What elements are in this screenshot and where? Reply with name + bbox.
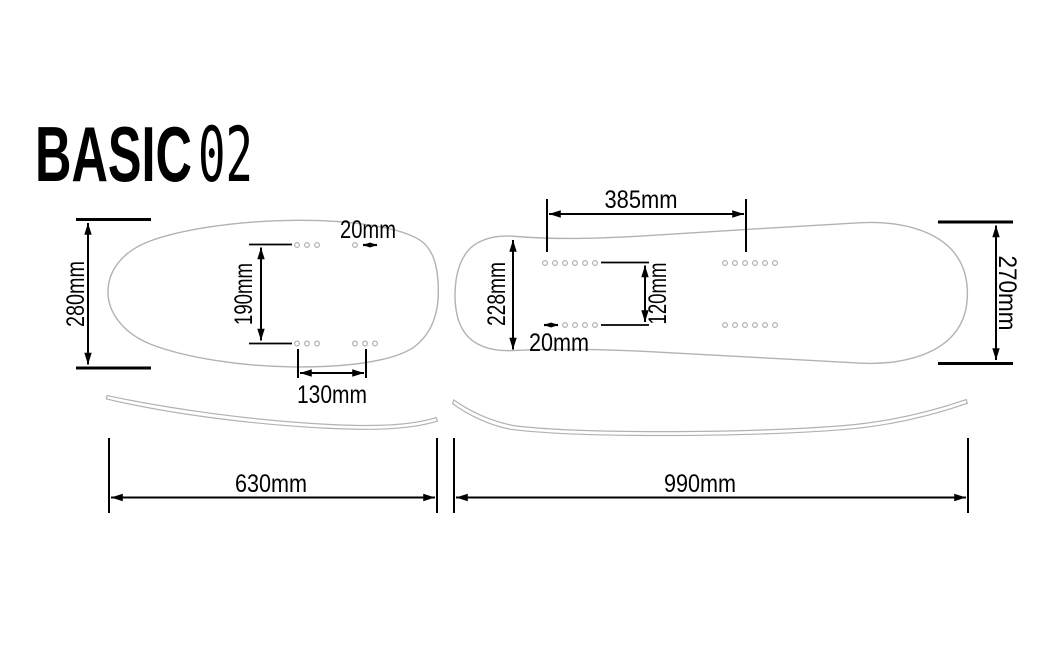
- dim-label-385mm: 385mm: [605, 186, 678, 214]
- dim-label-270mm: 270mm: [993, 256, 1021, 331]
- dim-long-deck-hole-pitch: 20mm: [529, 325, 589, 357]
- dim-short-deck-hole-pitch: 20mm: [340, 216, 396, 245]
- title-brand: BASIC: [35, 110, 192, 198]
- dim-label-990mm: 990mm: [664, 470, 736, 498]
- dim-label-228mm: 228mm: [483, 262, 511, 326]
- long-deck-side-profile: [453, 400, 968, 436]
- dim-long-deck-length: 990mm: [454, 438, 968, 513]
- dim-short-deck-length: 630mm: [109, 438, 437, 513]
- spec-sheet: BASIC 02 280mm 190mm 20mm 130mm: [0, 0, 1062, 647]
- dim-label-20mm-short: 20mm: [340, 216, 396, 244]
- dim-label-190mm: 190mm: [230, 263, 258, 325]
- title-model: 02: [198, 110, 253, 199]
- dim-label-20mm-long: 20mm: [529, 329, 589, 357]
- short-deck-side-profile: [106, 396, 437, 430]
- dim-label-280mm: 280mm: [62, 261, 90, 327]
- dim-label-120mm: 120mm: [644, 263, 672, 325]
- spec-diagram: BASIC 02 280mm 190mm 20mm 130mm: [0, 0, 1062, 647]
- dim-label-130mm: 130mm: [297, 381, 367, 409]
- dim-label-630mm: 630mm: [235, 470, 307, 498]
- page-title: BASIC 02: [35, 110, 253, 199]
